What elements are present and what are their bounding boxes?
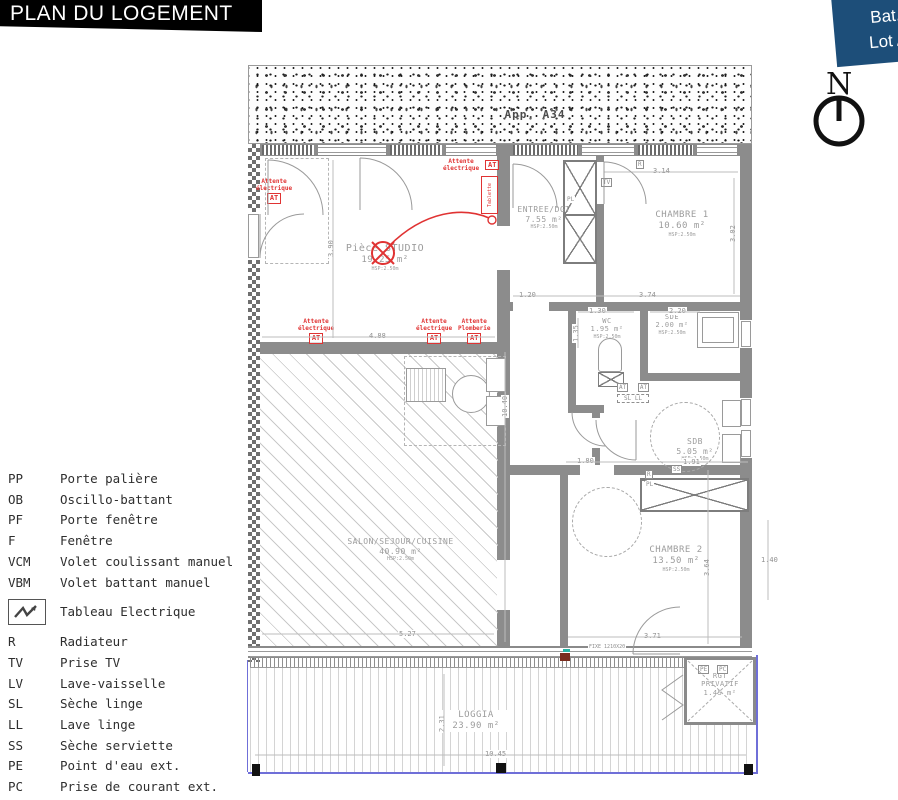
- dim-right: 1.40: [760, 556, 779, 564]
- window: [318, 145, 386, 155]
- wc-sde-wall: [640, 311, 648, 381]
- laundry-stack: AT AT SL LL: [617, 374, 649, 403]
- legend-row-lv: LVLave-vaisselle: [8, 674, 248, 695]
- legend: PPPorte palière OBOscillo-battant PFPort…: [8, 469, 248, 798]
- room-label-sde: SDE 2.00 m² HSP:2.50m: [648, 313, 696, 336]
- window: [697, 145, 737, 155]
- loggia-railing: [250, 656, 752, 668]
- dim-chambre1-top: 3.14: [652, 167, 671, 175]
- east-window: [741, 321, 751, 347]
- legend-row-sl: SLSèche linge: [8, 694, 248, 715]
- legend-row-pp: PPPorte palière: [8, 469, 248, 490]
- shutter-box: [638, 145, 693, 155]
- towel-dryer-tag: SS: [672, 466, 681, 473]
- east-window: [741, 399, 751, 426]
- west-window: [248, 214, 259, 258]
- salon-opening-gap: [497, 560, 510, 610]
- legend-row-r: RRadiateur: [8, 632, 248, 653]
- survey-mark: [496, 763, 506, 773]
- toilet: [598, 338, 622, 372]
- legend-label: Prise de courant ext.: [60, 781, 218, 794]
- room-label-rgt: RGT PRIVATIF 1.45 m²: [688, 672, 752, 697]
- at-box: AT: [309, 333, 323, 343]
- washbasin: [722, 434, 741, 463]
- legend-row-pe: PEPoint d'eau ext.: [8, 756, 248, 777]
- dim-sdb-width: 1.91: [682, 458, 701, 466]
- north-arrow: N: [816, 67, 862, 144]
- attente-electrique-bottom2: Attente électrique AT: [416, 318, 452, 344]
- legend-abbr: PP: [8, 473, 60, 486]
- dim-total-height: 10.40: [501, 395, 509, 418]
- dim-wc-width: 1.30: [588, 307, 607, 315]
- legend-label: Volet battant manuel: [60, 577, 211, 590]
- washbasin: [722, 400, 741, 427]
- floor-plan-page: { "header": { "title": "PLAN DU LOGEMENT…: [0, 0, 898, 800]
- at-box: AT: [267, 193, 281, 203]
- dim-studio-height: 3.90: [327, 239, 335, 258]
- legend-abbr: VCM: [8, 556, 60, 569]
- hall-opening-gap: [513, 302, 549, 311]
- shutter-box: [513, 145, 578, 155]
- closet-label: PL: [645, 481, 654, 488]
- kitchen-sink: [406, 368, 446, 402]
- legend-abbr: SS: [8, 740, 60, 753]
- page-title-text: PLAN DU LOGEMENT: [0, 0, 233, 26]
- pc-tag: PC: [717, 665, 728, 674]
- legend-abbr: F: [8, 535, 60, 548]
- dim-chambre2-height: 3.64: [703, 558, 711, 577]
- shutter-box: [390, 145, 442, 155]
- legend-abbr: PF: [8, 514, 60, 527]
- legend-row-electric: Tableau Electrique: [8, 595, 248, 629]
- electric-panel-icon: [8, 599, 46, 625]
- sdb-door-gap: [592, 418, 600, 448]
- legend-row-vcm: VCMVolet coulissant manuel: [8, 552, 248, 573]
- dim-studio-width: 4.88: [368, 332, 387, 340]
- dim-salon-width: 5.27: [398, 630, 417, 638]
- survey-mark-brown: [560, 653, 570, 661]
- chambre2-closet: [640, 478, 749, 512]
- sde-sdb-wall: [640, 373, 752, 381]
- legend-row-pf: PFPorte fenêtre: [8, 510, 248, 531]
- legend-label: Tableau Electrique: [60, 606, 195, 619]
- neighbor-apartment-hatch: [248, 65, 752, 144]
- window: [446, 145, 496, 155]
- fixed-window-tag: FIXE 1210X20: [588, 644, 626, 650]
- legend-label: Porte fenêtre: [60, 514, 158, 527]
- dim-sdb-left: 1.80: [576, 457, 595, 465]
- legend-label: Sèche serviette: [60, 740, 173, 753]
- legend-label: Radiateur: [60, 636, 128, 649]
- east-window: [741, 430, 751, 457]
- closet-label: PL: [566, 196, 575, 203]
- legend-row-tv: TVPrise TV: [8, 653, 248, 674]
- dim-loggia-width: 10.45: [484, 750, 507, 758]
- survey-mark: [252, 764, 260, 776]
- room-label-studio: Pièce STUDIO 19.25 m² HSP:2.50m: [320, 243, 450, 272]
- window: [582, 145, 634, 155]
- page-title: PLAN DU LOGEMENT: [0, 0, 262, 32]
- legend-label: Fenêtre: [60, 535, 113, 548]
- kitchen-table: [452, 375, 490, 413]
- legend-label: Sèche linge: [60, 698, 143, 711]
- legend-label: Porte palière: [60, 473, 158, 486]
- legend-abbr: PE: [8, 760, 60, 773]
- dim-wc-height: 1.35: [572, 324, 580, 343]
- legend-row-f: FFenêtre: [8, 531, 248, 552]
- at-box: AT: [485, 160, 499, 170]
- north-circle: [816, 98, 862, 144]
- radiator-tag: R: [645, 470, 653, 479]
- dim-sde-width: 2.20: [668, 307, 687, 315]
- room-label-loggia: LOGGIA 23.90 m²: [440, 710, 512, 732]
- attente-electrique-topright: Attente électrique: [443, 158, 479, 172]
- legend-abbr: LV: [8, 678, 60, 691]
- property-line-west: [247, 660, 248, 772]
- legend-abbr: R: [8, 636, 60, 649]
- room-label-wc: WC 1.95 m² HSP:2.50m: [584, 317, 630, 340]
- legend-label: Oscillo-battant: [60, 494, 173, 507]
- at-tag: AT: [617, 383, 628, 392]
- room-label-chambre1: CHAMBRE 1 10.60 m² HSP:2.50m: [638, 210, 726, 238]
- dim-loggia-height: 2.31: [438, 714, 446, 733]
- legend-row-ob: OBOscillo-battant: [8, 490, 248, 511]
- lot-badge: Bat. A Lot A 3: [831, 0, 898, 67]
- pe-tag: PE: [698, 665, 709, 674]
- dim-chambre2-width: 3.71: [643, 632, 662, 640]
- room-label-salon: SALON/SEJOUR/CUISINE 40.90 m² HSP:2.50m: [328, 537, 473, 562]
- legend-label: Lave-vaisselle: [60, 678, 165, 691]
- shutter-box: [262, 145, 314, 155]
- legend-label: Point d'eau ext.: [60, 760, 180, 773]
- kitchen-column: [486, 358, 506, 392]
- legend-label: Lave linge: [60, 719, 135, 732]
- chambre2-door-gap: [580, 465, 614, 475]
- room-label-entree: ENTREE/DGT 7.55 m² HSP:2.50m: [505, 205, 583, 230]
- legend-abbr: PC: [8, 781, 60, 794]
- tablette-box: Tablette: [481, 176, 498, 214]
- legend-row-ll: LLLave linge: [8, 715, 248, 736]
- attente-electrique-left: Attente électrique AT: [256, 178, 292, 204]
- chambre2-west-wall: [560, 475, 568, 646]
- legend-row-vbm: VBMVolet battant manuel: [8, 572, 248, 593]
- survey-mark: [744, 764, 753, 775]
- legend-abbr: VBM: [8, 577, 60, 590]
- property-line-east: [756, 655, 758, 774]
- shower-inner: [702, 317, 734, 343]
- sl-ll-tag: SL LL: [617, 394, 649, 403]
- legend-abbr: SL: [8, 698, 60, 711]
- dim-hall: 1.20: [518, 291, 537, 299]
- studio-south-wall: [260, 342, 497, 354]
- radiator-tag: R: [636, 160, 644, 169]
- legend-row-pc: PCPrise de courant ext.: [8, 777, 248, 798]
- legend-label: Prise TV: [60, 657, 120, 670]
- neighbor-apartment-label: App. A34: [480, 108, 590, 121]
- north-label: N: [826, 67, 852, 102]
- legend-row-ss: SSSèche serviette: [8, 736, 248, 757]
- legend-abbr: OB: [8, 494, 60, 507]
- attente-plomberie-bottom: Attente Plomberie AT: [458, 318, 491, 344]
- at-tag: AT: [638, 383, 649, 392]
- studio-door-gap: [497, 226, 510, 270]
- at-box: AT: [467, 333, 481, 343]
- dim-chambre1-height: 3.02: [729, 224, 737, 243]
- tv-socket-tag: TV: [601, 178, 612, 187]
- at-box: AT: [427, 333, 441, 343]
- legend-label: Volet coulissant manuel: [60, 556, 233, 569]
- legend-abbr: LL: [8, 719, 60, 732]
- legend-abbr: TV: [8, 657, 60, 670]
- tablette-label: Tablette: [487, 183, 493, 207]
- attente-electrique-bottom1: Attente électrique AT: [298, 318, 334, 344]
- survey-mark-teal: [563, 649, 570, 652]
- chambre2-north-wall: [510, 465, 752, 475]
- dim-chambre1-width: 3.74: [638, 291, 657, 299]
